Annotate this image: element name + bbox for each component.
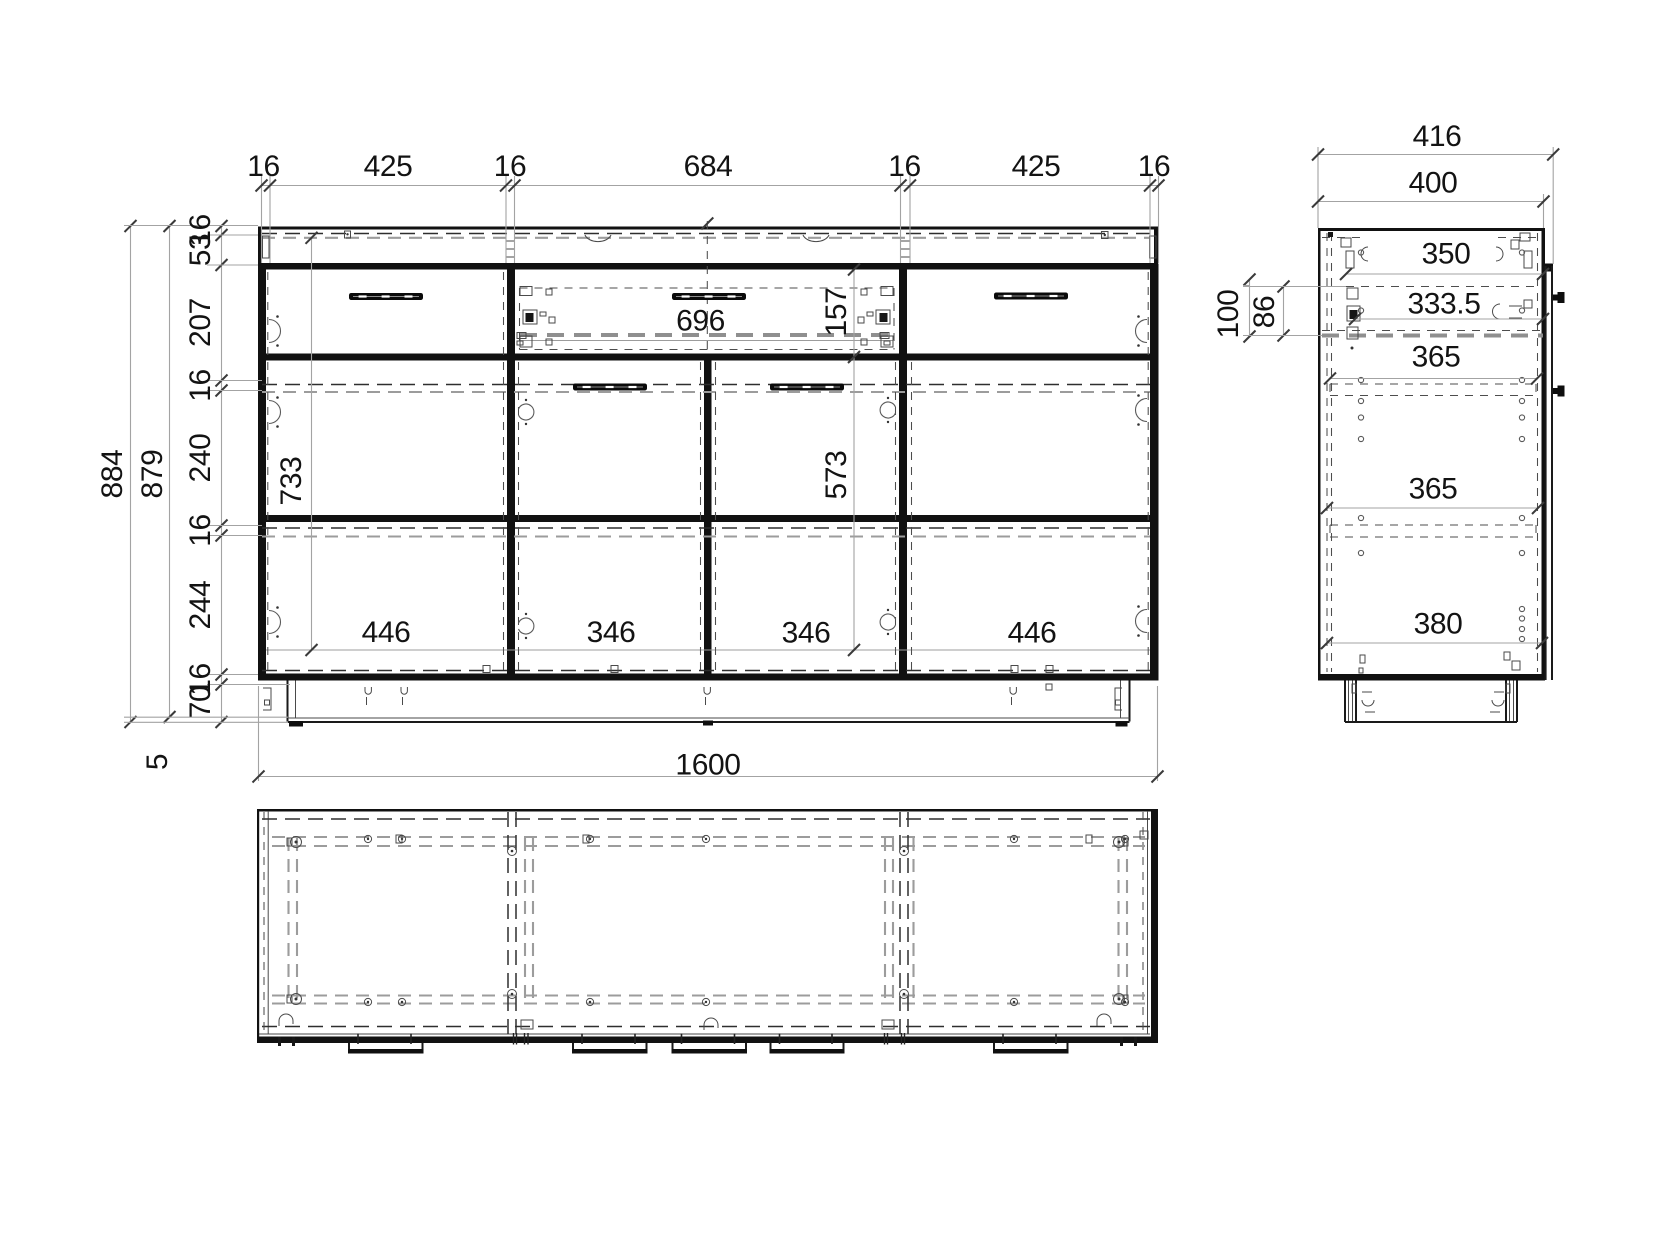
svg-text:16: 16 (184, 369, 217, 402)
svg-text:365: 365 (1412, 341, 1461, 374)
svg-text:350: 350 (1422, 238, 1471, 271)
svg-text:400: 400 (1409, 167, 1458, 200)
svg-text:346: 346 (587, 616, 636, 649)
svg-text:446: 446 (362, 616, 411, 649)
svg-text:425: 425 (1012, 150, 1061, 183)
svg-text:733: 733 (275, 457, 308, 506)
svg-text:879: 879 (136, 450, 169, 499)
svg-text:16: 16 (1138, 150, 1171, 183)
svg-text:207: 207 (184, 298, 217, 347)
svg-text:16: 16 (184, 514, 217, 547)
svg-text:16: 16 (888, 150, 921, 183)
svg-text:425: 425 (364, 150, 413, 183)
svg-text:70: 70 (184, 686, 217, 719)
svg-text:380: 380 (1414, 608, 1463, 641)
svg-text:16: 16 (494, 150, 527, 183)
svg-text:333.5: 333.5 (1407, 288, 1480, 321)
svg-text:346: 346 (782, 617, 831, 650)
svg-text:157: 157 (820, 288, 853, 337)
svg-text:884: 884 (96, 450, 129, 499)
svg-text:1600: 1600 (675, 749, 740, 782)
svg-text:16: 16 (247, 150, 280, 183)
svg-text:5: 5 (141, 754, 174, 770)
svg-text:696: 696 (676, 305, 725, 338)
svg-text:573: 573 (820, 451, 853, 500)
svg-text:100: 100 (1212, 290, 1245, 339)
svg-text:365: 365 (1409, 473, 1458, 506)
svg-text:53: 53 (184, 234, 217, 267)
svg-text:416: 416 (1413, 120, 1462, 153)
svg-text:86: 86 (1248, 296, 1281, 329)
svg-text:446: 446 (1008, 617, 1057, 650)
svg-text:684: 684 (684, 150, 733, 183)
svg-text:244: 244 (184, 581, 217, 630)
svg-text:240: 240 (184, 434, 217, 483)
